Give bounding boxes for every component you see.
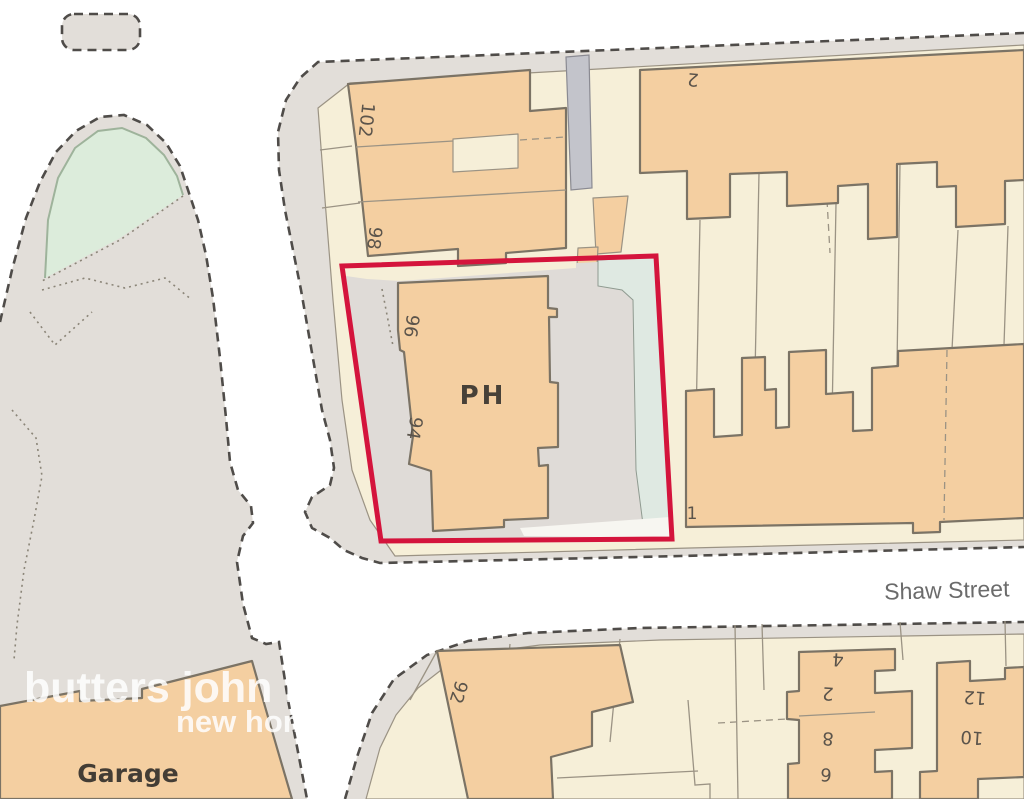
- house-number-6: 6: [820, 763, 833, 785]
- watermark-tagline: new homes: [176, 704, 345, 739]
- street-name-shaw-street: Shaw Street: [884, 575, 1011, 604]
- north-block: 102 98 96 94 2 1 PH: [278, 33, 1024, 563]
- alley-surface: [566, 55, 592, 190]
- house-number-102: 102: [354, 102, 378, 138]
- house-number-4: 4: [832, 648, 845, 670]
- garage-label: Garage: [77, 759, 178, 788]
- house-number-8: 8: [822, 727, 835, 749]
- detached-parcel: [62, 14, 140, 50]
- map-canvas: 102 98 96 94 2 1 PH Shaw Street 92 4 2: [0, 0, 1024, 799]
- house-number-2-south: 2: [822, 682, 835, 704]
- house-number-98: 98: [362, 225, 386, 250]
- house-number-10: 10: [960, 726, 984, 749]
- house-number-94: 94: [402, 415, 427, 441]
- terrace-inner-yard: [453, 134, 518, 172]
- public-house-label: PH: [460, 381, 507, 411]
- site-location-plan: 102 98 96 94 2 1 PH Shaw Street 92 4 2: [0, 0, 1024, 799]
- house-number-96: 96: [399, 313, 423, 339]
- house-number-1: 1: [687, 504, 698, 524]
- house-number-12: 12: [963, 686, 987, 709]
- sale-plot: [342, 256, 672, 541]
- house-number-2-north: 2: [686, 68, 699, 90]
